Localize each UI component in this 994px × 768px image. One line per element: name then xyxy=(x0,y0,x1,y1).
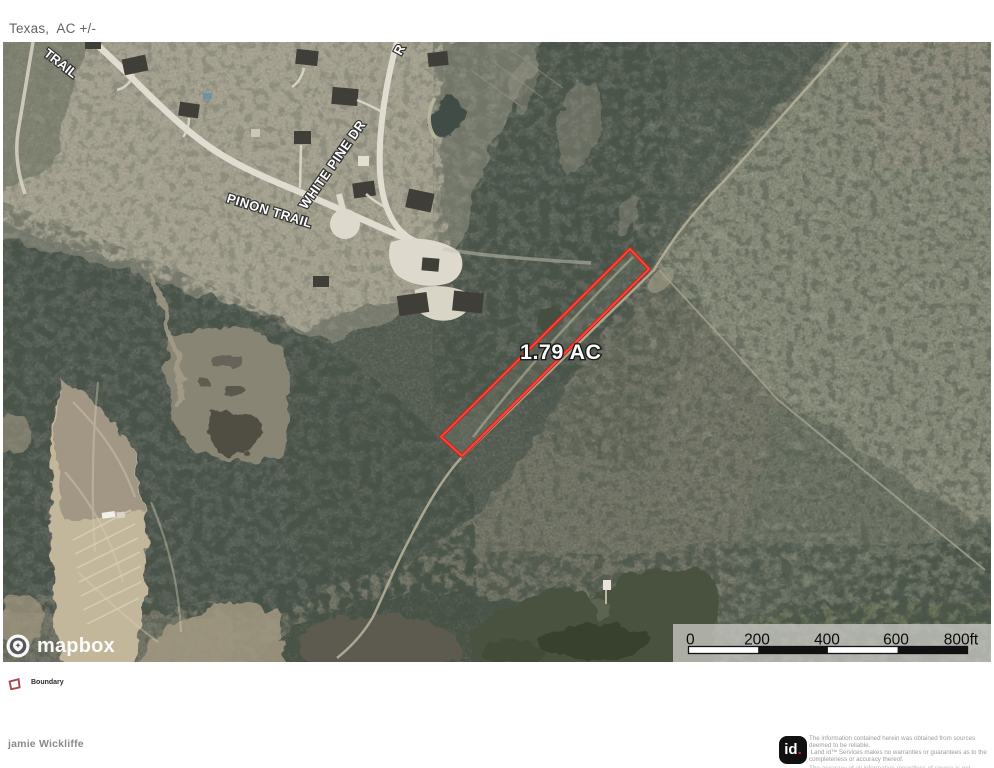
svg-text:mapbox: mapbox xyxy=(37,635,115,657)
svg-text:1.79 AC: 1.79 AC xyxy=(520,340,602,364)
